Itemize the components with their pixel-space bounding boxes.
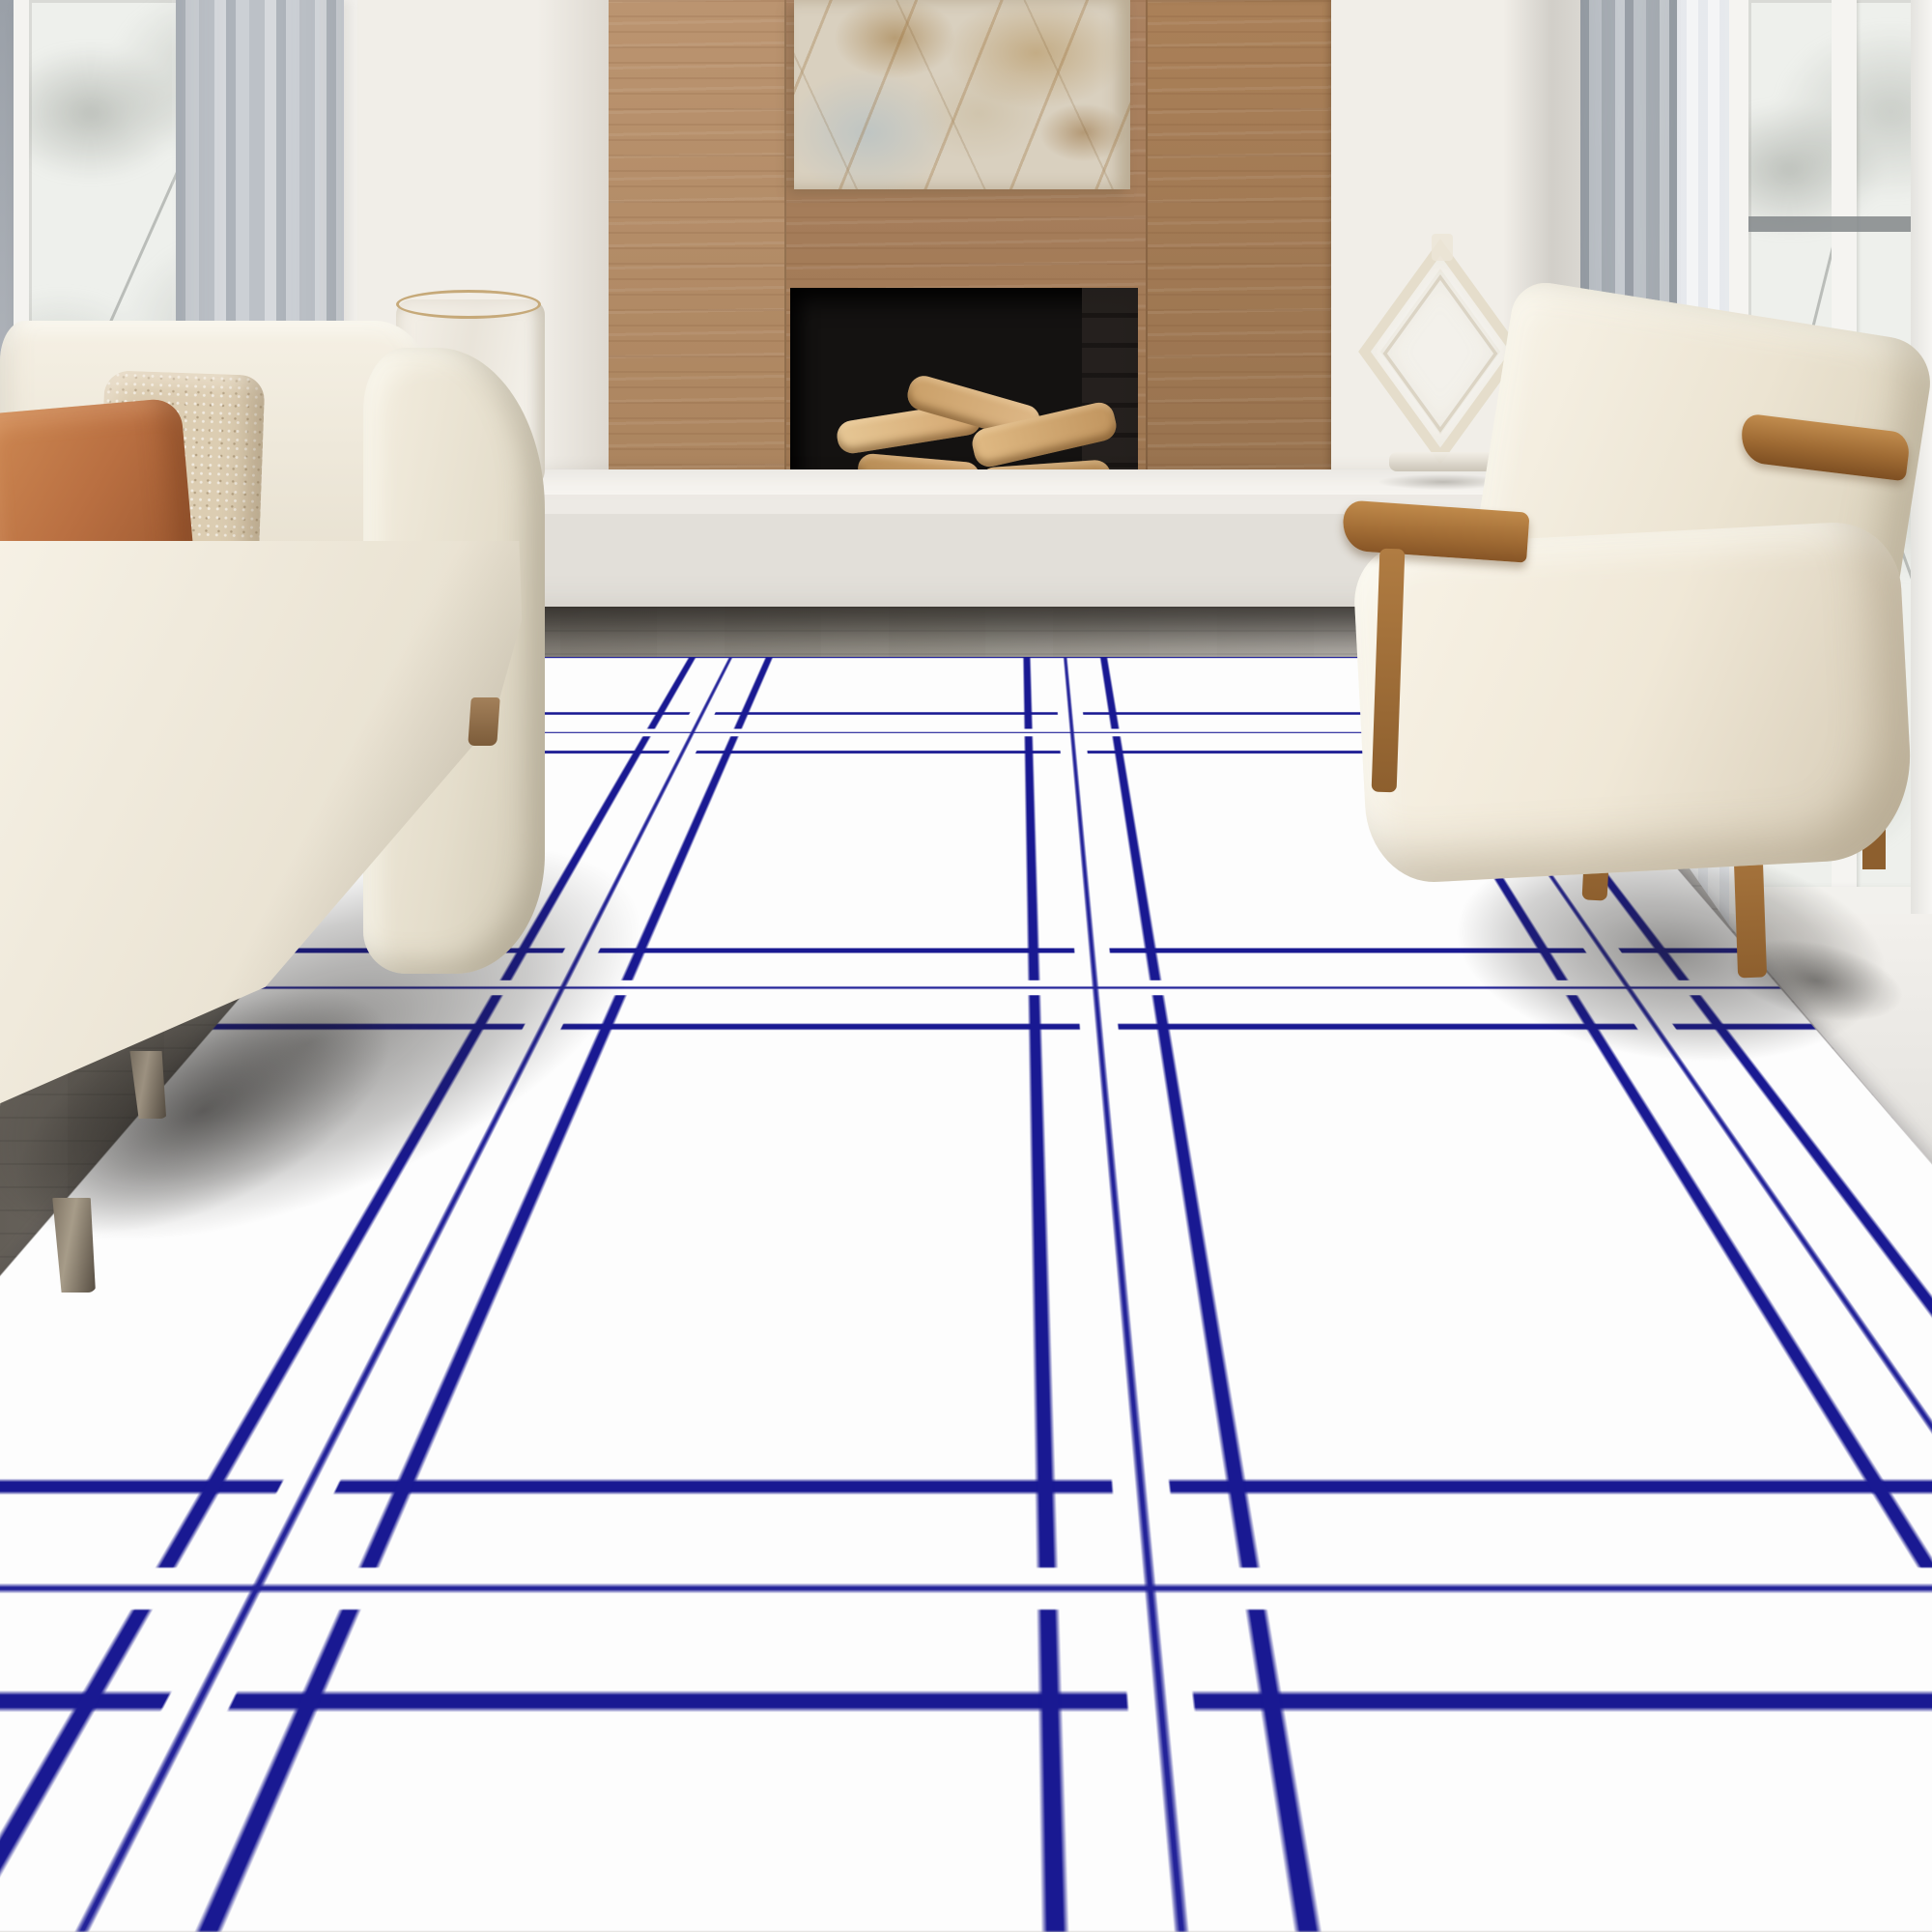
wood-grain	[609, 0, 784, 543]
artwork-veins	[794, 0, 1130, 189]
wood-grain	[1148, 0, 1331, 543]
sofa-front-leg	[468, 697, 499, 746]
sofa-metal-leg-front	[46, 1198, 97, 1293]
abstract-artwork	[794, 0, 1130, 189]
fireplace-wood-panel-left	[609, 0, 786, 543]
armchair	[1333, 309, 1932, 985]
chair-seat-cushion	[1351, 519, 1916, 885]
right-window-shade-bar	[1748, 216, 1932, 232]
fireplace-wood-panel-right	[1146, 0, 1331, 543]
sculpture-neck	[1432, 234, 1453, 261]
living-room-photo	[0, 0, 1932, 1932]
sofa	[0, 307, 583, 1350]
sofa-metal-leg	[124, 1051, 168, 1119]
